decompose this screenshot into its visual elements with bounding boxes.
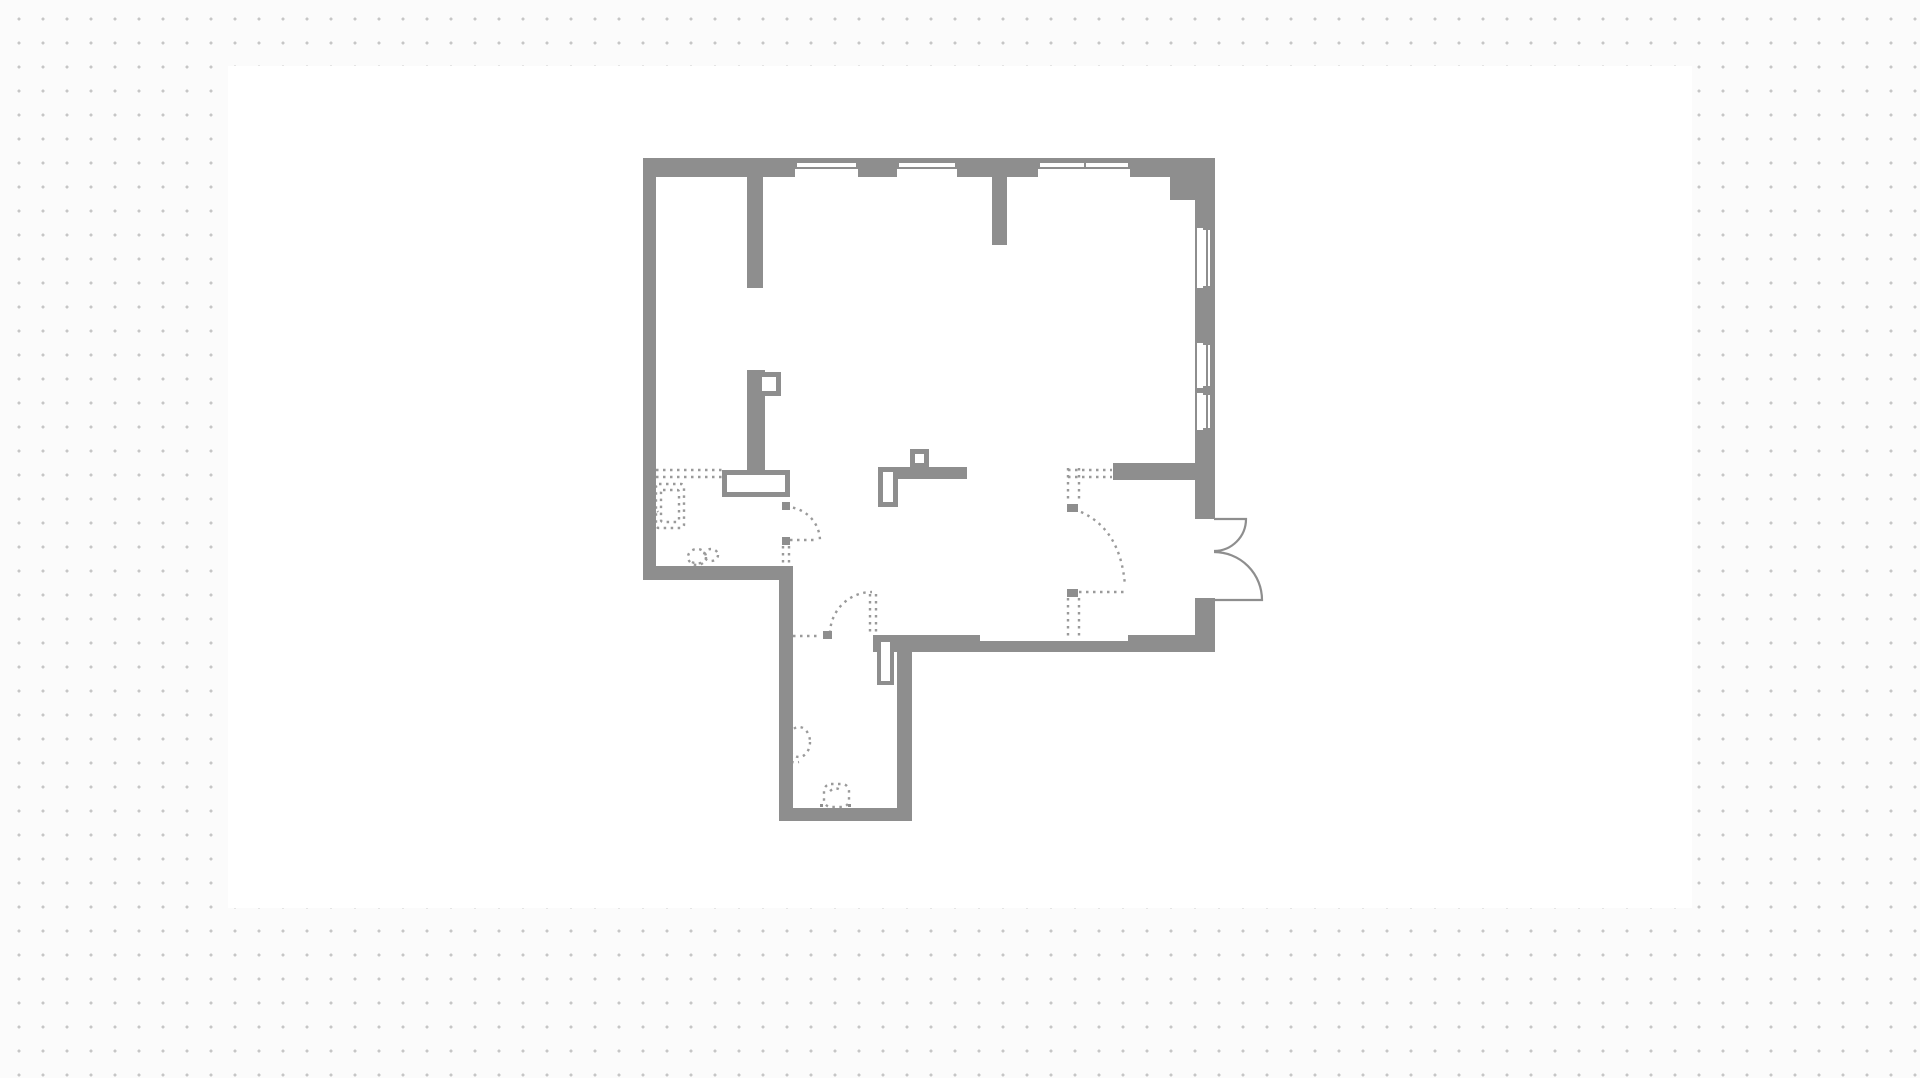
- corridor-bottom-wall[interactable]: [779, 808, 912, 821]
- window-right-2-tick-a: [1203, 343, 1210, 345]
- window-top-3-tick-mid: [1084, 160, 1086, 167]
- window-right-1-frame: [1206, 228, 1208, 288]
- floorplan-canvas[interactable]: [0, 0, 1920, 1078]
- corridor-door-arc[interactable]: [830, 592, 872, 633]
- window-right-3-frame: [1206, 393, 1208, 430]
- window-top-1-tick-a: [795, 160, 797, 167]
- window-right-2-frame: [1206, 343, 1208, 388]
- top-right-corner-block[interactable]: [1170, 177, 1215, 200]
- bottom-wall-middle[interactable]: [980, 641, 1128, 652]
- appliance-outline-inner[interactable]: [661, 490, 679, 522]
- window-right-2[interactable]: [1197, 343, 1210, 388]
- kitchen-box-small[interactable]: [757, 372, 781, 396]
- hinge-wardrobe-bottom[interactable]: [1067, 589, 1078, 597]
- hinge-kitchen-door-top[interactable]: [782, 502, 790, 510]
- kitchen-box-large[interactable]: [722, 470, 790, 497]
- window-right-1-tick-a: [1203, 228, 1210, 230]
- window-top-2[interactable]: [897, 163, 957, 177]
- window-top-1-tick-b: [856, 160, 858, 167]
- window-right-1[interactable]: [1197, 228, 1210, 288]
- sink-inner-line[interactable]: [830, 789, 842, 792]
- dot-fixture-right[interactable]: [848, 804, 851, 807]
- island-box-tall[interactable]: [878, 467, 898, 507]
- window-right-3[interactable]: [1197, 393, 1210, 430]
- left-room-bottom-wall[interactable]: [643, 566, 793, 580]
- window-right-3-tick-b: [1203, 428, 1210, 430]
- window-top-2-tick-a: [897, 160, 899, 167]
- corridor-door-leaf[interactable]: [877, 638, 894, 685]
- window-top-3-tick-b: [1128, 160, 1130, 167]
- french-door-bottom-leaf[interactable]: [1214, 552, 1262, 600]
- bottom-wall-right[interactable]: [1128, 635, 1215, 652]
- kitchen-door-arc[interactable]: [786, 507, 820, 541]
- window-top-1[interactable]: [795, 163, 858, 177]
- window-right-1-tick-b: [1203, 286, 1210, 288]
- corridor-right-wall[interactable]: [897, 650, 912, 821]
- pillar-top-right[interactable]: [992, 177, 1007, 245]
- floorplan-layer: [0, 0, 1920, 1078]
- window-top-2-frame: [897, 167, 957, 169]
- window-right-3-tick-a: [1203, 393, 1210, 395]
- left-wall-exterior[interactable]: [643, 158, 656, 580]
- wardrobe-door-arc[interactable]: [1081, 512, 1125, 586]
- window-top-3-tick-a: [1038, 160, 1040, 167]
- interior-wall-entry[interactable]: [1113, 463, 1195, 480]
- window-right-2-tick-b: [1203, 386, 1210, 388]
- window-top-2-tick-b: [955, 160, 957, 167]
- hinge-wardrobe-top[interactable]: [1067, 504, 1078, 512]
- french-door-top-leaf[interactable]: [1214, 519, 1246, 551]
- corridor-left-wall[interactable]: [779, 566, 793, 821]
- window-top-3-frame: [1038, 167, 1130, 169]
- pillar-top-left[interactable]: [747, 177, 763, 288]
- island-box-small[interactable]: [910, 449, 929, 468]
- dot-fixture-left[interactable]: [820, 804, 823, 807]
- hinge-corridor-door[interactable]: [823, 631, 832, 639]
- pet-bowl-left[interactable]: [688, 549, 706, 565]
- window-top-1-frame: [795, 167, 858, 169]
- hinge-kitchen-door-bottom[interactable]: [782, 537, 790, 545]
